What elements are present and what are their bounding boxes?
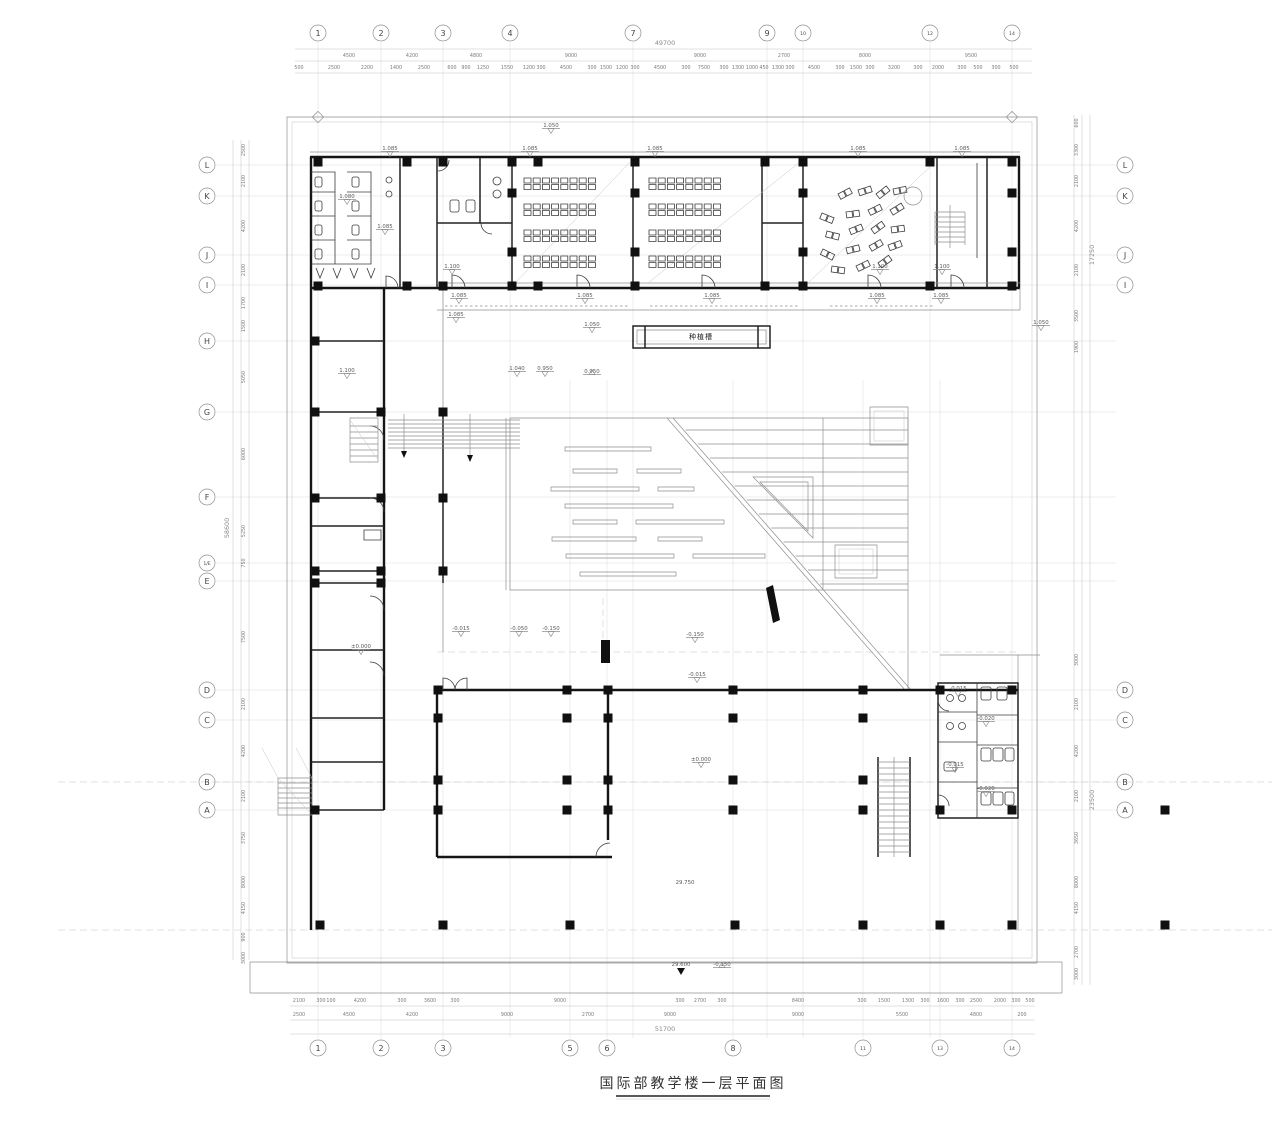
dimension-text: 1300 <box>772 65 784 71</box>
seat-pair <box>838 188 852 199</box>
dimension-text: 49700 <box>655 39 675 47</box>
desk <box>713 185 720 190</box>
desk <box>561 185 568 190</box>
dimension-text: 300 <box>865 65 874 71</box>
desk <box>713 204 720 209</box>
desk <box>713 263 720 268</box>
dimension-text: 3000 <box>1074 968 1080 980</box>
desk <box>579 263 586 268</box>
bench <box>693 554 765 558</box>
axis-bubble-label: 3 <box>440 1044 445 1053</box>
axis-bubble-label: C <box>204 716 210 725</box>
bench <box>658 487 694 491</box>
dimension-text: 9000 <box>664 1012 676 1018</box>
desk <box>542 237 549 242</box>
desk <box>649 230 656 235</box>
desk <box>561 211 568 216</box>
desk <box>667 237 674 242</box>
dimension-text: 3600 <box>424 998 436 1004</box>
desk <box>667 230 674 235</box>
axis-bubble-label: 7 <box>630 29 635 38</box>
courtyard <box>506 407 911 690</box>
dimension-text: 1600 <box>937 998 949 1004</box>
dimension-text: 5050 <box>241 371 247 383</box>
bench <box>580 572 676 576</box>
dimension-text: 300 <box>835 65 844 71</box>
dimension-text: 3200 <box>888 65 900 71</box>
dimension-text: 4500 <box>560 65 572 71</box>
seat <box>891 226 898 233</box>
desk <box>524 230 531 235</box>
dimension-text: 4200 <box>1074 745 1080 757</box>
axis-bubble-label: 13 <box>937 1046 943 1052</box>
level-triangle <box>938 299 944 304</box>
level-triangle <box>449 270 455 275</box>
desk <box>588 256 595 261</box>
desk <box>704 204 711 209</box>
dimension-text: 2500 <box>970 998 982 1004</box>
column-marker <box>439 282 448 291</box>
column-marker <box>434 776 443 785</box>
dimension-text: 2500 <box>328 65 340 71</box>
desk <box>533 237 540 242</box>
grid-lines <box>216 42 1116 1038</box>
axis-bubble-label: A <box>1122 806 1128 815</box>
dimension-text: 2000 <box>932 65 944 71</box>
axis-bubble-label: D <box>204 686 210 695</box>
desk <box>695 256 702 261</box>
seat-pair <box>890 203 904 215</box>
dimension-text: 8000 <box>859 53 871 59</box>
axis-bubble-label: H <box>204 337 210 346</box>
column-marker <box>508 158 517 167</box>
dimension-text: 6000 <box>241 448 247 460</box>
level-triangle <box>382 230 388 235</box>
dimension-text: 1000 <box>746 65 758 71</box>
dimension-text: 2100 <box>241 175 247 187</box>
dimension-text: 2000 <box>994 998 1006 1004</box>
desk <box>588 230 595 235</box>
column-marker <box>729 776 738 785</box>
dimension-text: 4200 <box>406 53 418 59</box>
column-marker <box>1008 282 1017 291</box>
dimension-text: 4500 <box>343 53 355 59</box>
dimension-text: 200 <box>1017 1012 1026 1018</box>
desk <box>524 204 531 209</box>
desk <box>524 263 531 268</box>
seat <box>832 233 839 240</box>
desk <box>695 178 702 183</box>
dimension-text: 300 <box>536 65 545 71</box>
axis-bubble-label: 1 <box>315 1044 320 1053</box>
desk <box>704 230 711 235</box>
seat <box>853 245 860 252</box>
dimension-text: 8000 <box>241 876 247 888</box>
dimension-text: 5500 <box>896 1012 908 1018</box>
dimension-text: 1500 <box>850 65 862 71</box>
room-labels: 种植槽 <box>689 332 713 341</box>
level-triangle <box>516 632 522 637</box>
desk <box>677 256 684 261</box>
axis-bubbles: 123479101214123568111314LKJIHGF1/EEDCBAL… <box>199 25 1133 1056</box>
column-marker <box>314 158 323 167</box>
level-triangle <box>939 270 945 275</box>
dimension-text: 500 <box>1009 65 1018 71</box>
dimension-text: 2700 <box>1074 946 1080 958</box>
desk <box>658 263 665 268</box>
column-marker <box>604 806 613 815</box>
dimension-text: 300 <box>450 998 459 1004</box>
dimension-text: 9000 <box>554 998 566 1004</box>
column-marker <box>631 158 640 167</box>
column-marker <box>377 408 386 417</box>
desk <box>695 230 702 235</box>
dimension-text: 2500 <box>418 65 430 71</box>
column-marker <box>1008 248 1017 257</box>
drawing-title: 国际部教学楼一层平面图 <box>600 1076 787 1092</box>
level-triangle <box>955 692 961 697</box>
desk <box>667 211 674 216</box>
seat-pair <box>869 240 883 252</box>
desk <box>704 263 711 268</box>
dimension-text: 300 <box>1011 998 1020 1004</box>
axis-bubble-label: K <box>204 192 210 201</box>
axis-bubble-label: 8 <box>730 1044 735 1053</box>
dimension-text: 500 <box>973 65 982 71</box>
column-marker <box>534 282 543 291</box>
bench <box>658 537 702 541</box>
dimension-text: 2200 <box>361 65 373 71</box>
desk <box>561 256 568 261</box>
desk <box>588 185 595 190</box>
level-triangle <box>542 372 548 377</box>
column-marker <box>1008 921 1017 930</box>
dimension-text: 1500 <box>600 65 612 71</box>
desk <box>588 211 595 216</box>
dimension-text: 300 <box>719 65 728 71</box>
desk <box>658 204 665 209</box>
dimension-text: 300 <box>955 998 964 1004</box>
toilet-room-top-fixtures <box>311 160 501 288</box>
level-triangle <box>952 768 958 773</box>
desk <box>561 230 568 235</box>
level-triangle <box>344 374 350 379</box>
seat <box>855 224 863 232</box>
desk <box>533 204 540 209</box>
seat <box>826 231 833 238</box>
desk <box>649 204 656 209</box>
desk <box>552 211 559 216</box>
dimension-text: 1500 <box>241 320 247 332</box>
amphitheater-steps <box>686 430 909 584</box>
axis-bubble-label: 14 <box>1009 31 1015 37</box>
floor-plan-drawing: 4970045004200480090009000270080009500500… <box>0 0 1280 1125</box>
column-marker <box>926 158 935 167</box>
desk <box>533 178 540 183</box>
column-marker <box>631 282 640 291</box>
column-marker <box>936 686 945 695</box>
desk <box>649 211 656 216</box>
level-value: 1.085 <box>647 146 662 152</box>
seat-pair <box>826 231 840 240</box>
column-marker <box>311 567 320 576</box>
column-marker <box>311 337 320 346</box>
column-marker <box>534 158 543 167</box>
axis-bubble-label: 3 <box>440 29 445 38</box>
dimension-text: 300 <box>316 998 325 1004</box>
desk <box>561 178 568 183</box>
seat-pair <box>856 260 870 271</box>
dimension-text: 2100 <box>1074 175 1080 187</box>
desk <box>649 263 656 268</box>
desk <box>658 256 665 261</box>
dimension-text: 4500 <box>343 1012 355 1018</box>
column-marker <box>604 686 613 695</box>
dimension-text: 450 <box>759 65 768 71</box>
dimension-text: 4150 <box>1074 902 1080 914</box>
seat <box>898 225 905 232</box>
wide-steps <box>350 414 520 462</box>
axis-bubble-label: J <box>1123 251 1126 260</box>
desk <box>570 204 577 209</box>
dimension-text: 9000 <box>501 1012 513 1018</box>
column-marker <box>761 158 770 167</box>
desk <box>658 178 665 183</box>
desk <box>649 256 656 261</box>
dimension-text: 1400 <box>390 65 402 71</box>
column-marker <box>311 579 320 588</box>
desk <box>552 185 559 190</box>
desk <box>552 178 559 183</box>
dimension-text: 1200 <box>616 65 628 71</box>
column-marker <box>311 408 320 417</box>
classroom-desks <box>524 178 720 268</box>
level-value: 1.085 <box>382 146 397 152</box>
desk <box>533 211 540 216</box>
left-wing-walls <box>311 288 443 930</box>
dimension-text: 4200 <box>241 220 247 232</box>
desk <box>686 263 693 268</box>
desk <box>667 256 674 261</box>
desk <box>677 178 684 183</box>
dimension-text: 51700 <box>655 1025 675 1033</box>
level-value: -0.050 <box>510 626 528 632</box>
desk <box>570 211 577 216</box>
dimension-text: 1300 <box>902 998 914 1004</box>
desk <box>713 230 720 235</box>
seat <box>853 210 860 217</box>
column-marker <box>563 714 572 723</box>
level-value: ±0.000 <box>351 644 372 650</box>
desk <box>695 263 702 268</box>
seat-pair <box>858 186 872 196</box>
column-marker <box>403 282 412 291</box>
desk <box>579 237 586 242</box>
dimension-text: 7500 <box>698 65 710 71</box>
axis-bubble-label: 12 <box>927 31 933 37</box>
bench <box>565 504 673 508</box>
desk <box>552 256 559 261</box>
seat <box>831 266 838 273</box>
column-marker <box>314 282 323 291</box>
level-value: 1.080 <box>339 194 355 200</box>
axis-bubble-label: 2 <box>378 1044 383 1053</box>
axis-bubble-label: B <box>204 778 210 787</box>
axis-bubble-label: 10 <box>800 31 806 37</box>
dimension-text: 3000 <box>1074 654 1080 666</box>
dimension-text: 300 <box>857 998 866 1004</box>
level-value: 1.050 <box>1033 320 1049 326</box>
level-triangle <box>709 299 715 304</box>
desk <box>713 256 720 261</box>
axis-bubble-label: 1 <box>315 29 320 38</box>
dimension-text: 2100 <box>1074 264 1080 276</box>
dimension-text: 9000 <box>792 1012 804 1018</box>
bench <box>636 520 724 524</box>
dimension-text: 1200 <box>523 65 535 71</box>
level-value: 1.040 <box>509 366 525 372</box>
level-value: 29.750 <box>676 880 695 886</box>
column-marker <box>563 686 572 695</box>
level-value: 1.085 <box>377 224 392 230</box>
dimension-text: 600 <box>1074 118 1080 127</box>
dimension-text: 8000 <box>1074 876 1080 888</box>
column-marker <box>508 282 517 291</box>
column-marker <box>926 282 935 291</box>
column-marker <box>1008 686 1017 695</box>
column-marker <box>434 686 443 695</box>
desk <box>667 204 674 209</box>
level-value: 0.950 <box>537 366 553 372</box>
column-marker <box>1161 806 1170 815</box>
column-marker <box>403 158 412 167</box>
column-marker <box>799 158 808 167</box>
room-label: 种植槽 <box>689 332 713 341</box>
desk <box>677 204 684 209</box>
bench <box>552 537 636 541</box>
desk <box>686 230 693 235</box>
desk <box>704 256 711 261</box>
column-marker <box>859 714 868 723</box>
level-value: 1.085 <box>869 293 884 299</box>
dimension-text: 4200 <box>406 1012 418 1018</box>
dimension-text: 1500 <box>878 998 890 1004</box>
dimension-text: 1700 <box>241 297 247 309</box>
dimension-text: 4200 <box>241 745 247 757</box>
level-triangle <box>589 328 595 333</box>
level-value: -0.020 <box>977 716 995 722</box>
desk <box>658 230 665 235</box>
level-triangle-filled <box>677 968 685 975</box>
column-marker <box>631 189 640 198</box>
level-value: -0.020 <box>977 786 995 792</box>
dimension-text: 9000 <box>565 53 577 59</box>
level-value: -0.015 <box>688 672 705 678</box>
bench <box>573 520 617 524</box>
dimension-text: 4800 <box>970 1012 982 1018</box>
column-marker <box>631 248 640 257</box>
dimension-text: 9000 <box>694 53 706 59</box>
dimension-text: 600 <box>447 65 456 71</box>
dimension-chain-lines <box>233 49 1090 1034</box>
column-marker <box>563 806 572 815</box>
desk <box>695 211 702 216</box>
desk <box>588 178 595 183</box>
desk <box>686 237 693 242</box>
axis-bubble-label: D <box>1122 686 1128 695</box>
dimension-text: 3500 <box>1074 310 1080 322</box>
seat <box>826 216 834 224</box>
desk <box>658 211 665 216</box>
desk <box>677 185 684 190</box>
column-marker <box>566 921 575 930</box>
column-marker <box>1008 806 1017 815</box>
level-value: ±0.000 <box>691 757 712 763</box>
desk <box>677 230 684 235</box>
level-triangle <box>582 299 588 304</box>
desk <box>588 237 595 242</box>
dimension-text: 2700 <box>582 1012 594 1018</box>
desk <box>695 204 702 209</box>
desk <box>579 185 586 190</box>
level-triangle <box>453 318 459 323</box>
level-triangle <box>548 129 554 134</box>
dimension-text: 17250 <box>1088 245 1096 265</box>
level-triangle <box>1038 326 1044 331</box>
bench <box>565 447 651 451</box>
column-marker <box>434 806 443 815</box>
axis-bubble-label: K <box>1122 192 1128 201</box>
axis-bubble-label: 6 <box>604 1044 609 1053</box>
dimension-text: 23500 <box>1088 790 1096 810</box>
dimension-text: 2700 <box>778 53 790 59</box>
level-value: 1.085 <box>933 293 948 299</box>
dimension-text: 58600 <box>223 518 231 538</box>
toilet-room-bottom-fixtures <box>938 683 1018 818</box>
column-marker <box>377 494 386 503</box>
column-marker <box>508 189 517 198</box>
dimension-text: 1900 <box>1074 341 1080 353</box>
column-marker <box>859 806 868 815</box>
desk <box>667 178 674 183</box>
seat-pair <box>888 241 902 251</box>
desk <box>524 237 531 242</box>
dimension-text: 1300 <box>732 65 744 71</box>
axis-bubble-label: 14 <box>1009 1046 1015 1052</box>
column-marker <box>799 248 808 257</box>
dimension-text: 500 <box>1025 998 1034 1004</box>
seat-pair <box>820 249 834 260</box>
column-marker <box>604 776 613 785</box>
axis-bubble-label: L <box>205 161 210 170</box>
desk <box>552 204 559 209</box>
column-marker <box>731 921 740 930</box>
seat-pair <box>868 204 882 215</box>
seat <box>858 188 866 196</box>
desk <box>677 237 684 242</box>
desk <box>686 211 693 216</box>
level-triangle <box>344 200 350 205</box>
desk <box>542 185 549 190</box>
desk <box>658 237 665 242</box>
level-triangle <box>874 299 880 304</box>
desk <box>561 263 568 268</box>
desk <box>579 256 586 261</box>
dimension-text: 4200 <box>354 998 366 1004</box>
column-marker <box>799 189 808 198</box>
dimension-text: 4500 <box>654 65 666 71</box>
column-marker <box>729 686 738 695</box>
